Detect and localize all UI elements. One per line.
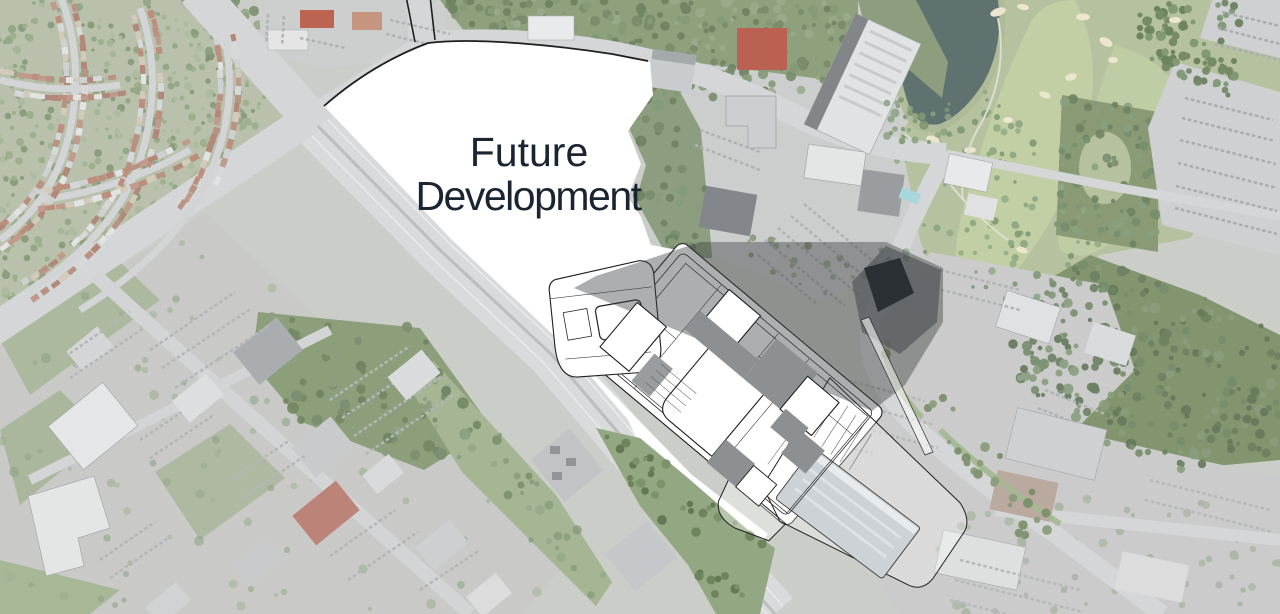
svg-text:Development: Development — [415, 173, 642, 219]
svg-text:Future: Future — [470, 129, 589, 175]
